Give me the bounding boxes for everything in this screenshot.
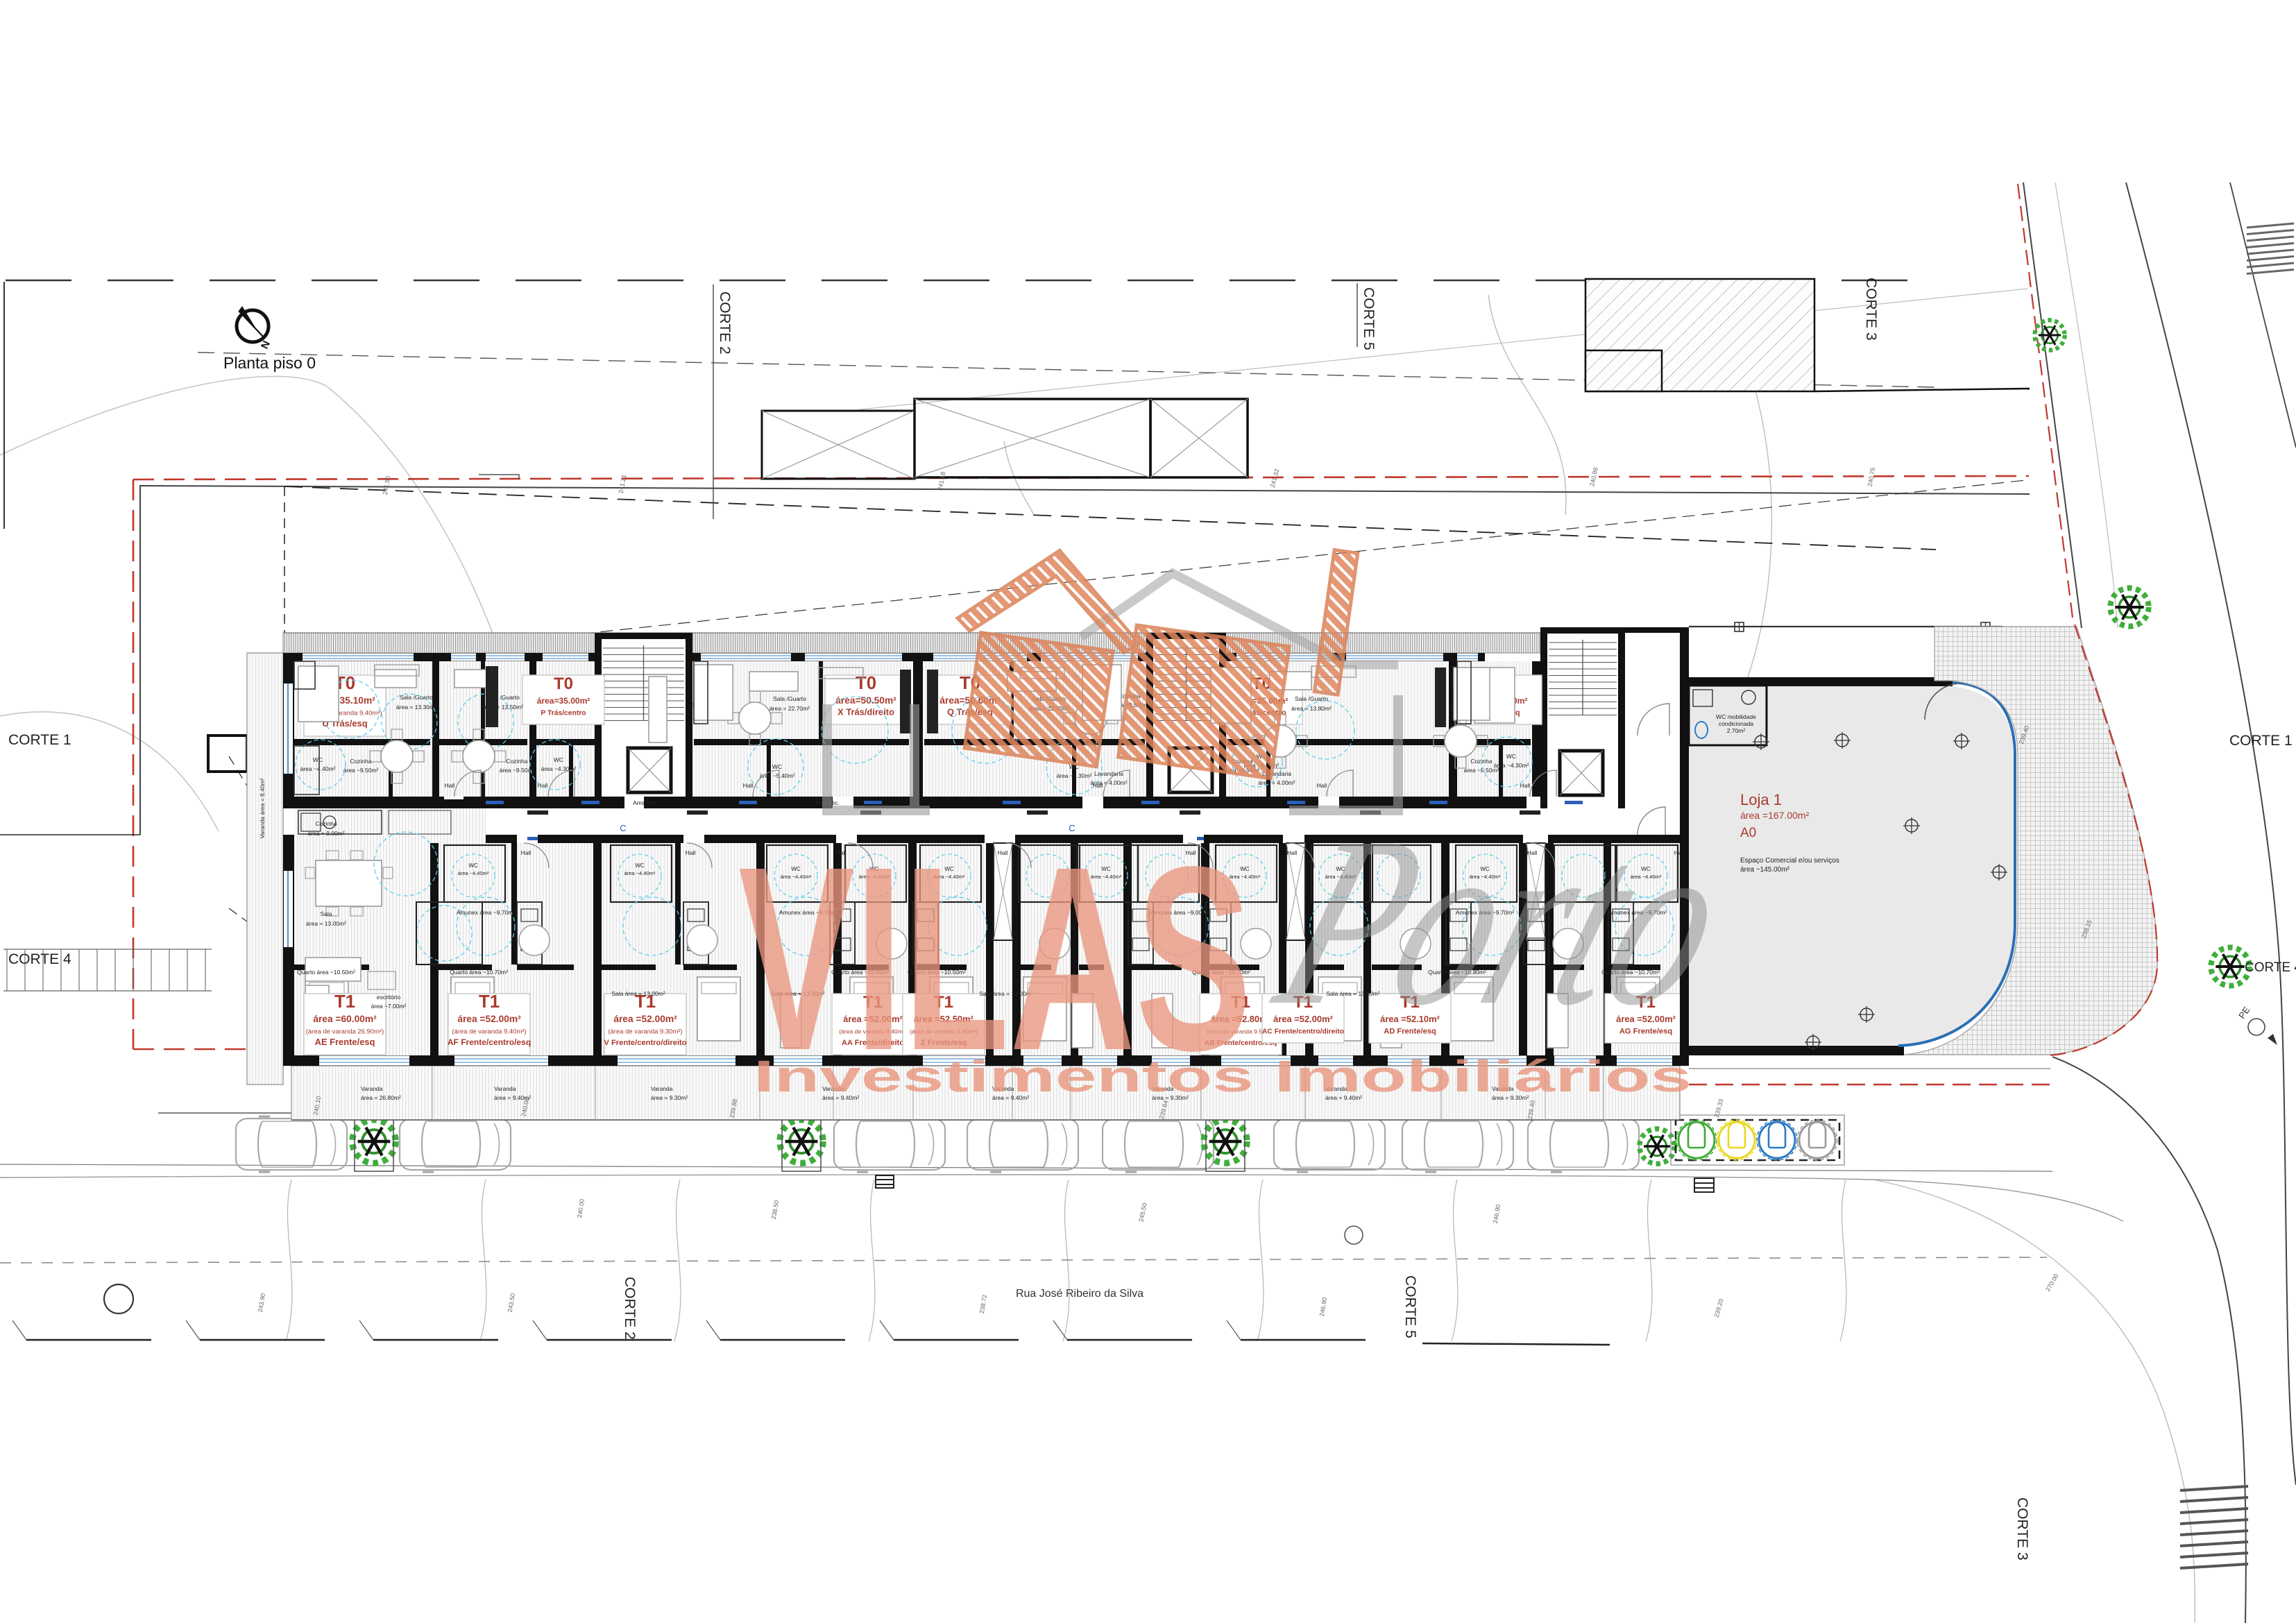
svg-text:Cozinha: Cozinha — [1470, 758, 1492, 765]
svg-text:área ~4.40m²: área ~4.40m² — [458, 870, 489, 876]
svg-text:área = 26.80m²: área = 26.80m² — [361, 1094, 401, 1101]
svg-text:área =52.00m²: área =52.00m² — [457, 1014, 521, 1024]
svg-text:2.70m²: 2.70m² — [1727, 727, 1746, 734]
svg-text:Investimentos Imobiliários: Investimentos Imobiliários — [754, 1051, 1692, 1101]
svg-text:C: C — [620, 823, 626, 833]
svg-text:Hall: Hall — [743, 782, 754, 789]
svg-text:CORTE 4: CORTE 4 — [2245, 960, 2296, 975]
svg-text:Sala: Sala — [320, 910, 332, 917]
svg-text:Cozinha: Cozinha — [315, 820, 337, 827]
svg-text:WC: WC — [1506, 753, 1516, 760]
svg-text:CORTE 5: CORTE 5 — [1402, 1275, 1418, 1339]
svg-text:área = 13.00m²: área = 13.00m² — [306, 920, 346, 927]
svg-text:WC: WC — [635, 863, 645, 869]
svg-text:WC: WC — [468, 863, 478, 869]
svg-text:T0: T0 — [554, 674, 573, 693]
svg-text:WC: WC — [554, 756, 563, 763]
svg-text:área ~5.40m²: área ~5.40m² — [760, 772, 795, 779]
svg-text:área ~4.30m²: área ~4.30m² — [1494, 762, 1529, 769]
svg-text:área =52.00m²: área =52.00m² — [613, 1014, 677, 1024]
svg-text:Espaço Comercial e/ou serviços: Espaço Comercial e/ou serviços — [1740, 857, 1839, 865]
svg-text:Varanda: Varanda — [361, 1085, 384, 1092]
svg-text:área = 4.00m²: área = 4.00m² — [1258, 779, 1295, 786]
svg-text:V Frente/centro/direito: V Frente/centro/direito — [604, 1039, 686, 1047]
svg-text:área ~4.40m²: área ~4.40m² — [624, 870, 656, 876]
svg-text:área =60.00m²: área =60.00m² — [313, 1014, 377, 1024]
svg-text:área=50.50m²: área=50.50m² — [835, 695, 896, 706]
svg-text:CORTE 4: CORTE 4 — [8, 951, 71, 967]
svg-text:Varanda: Varanda — [494, 1085, 516, 1092]
svg-text:área = 9.00m²: área = 9.00m² — [307, 830, 344, 837]
svg-text:Hall: Hall — [445, 782, 455, 789]
svg-text:área = 22.70m²: área = 22.70m² — [769, 705, 810, 712]
svg-text:Amunex área ~9.70m²: Amunex área ~9.70m² — [457, 909, 516, 916]
svg-text:área ~4.30m²: área ~4.30m² — [541, 765, 577, 772]
svg-text:área ~145.00m²: área ~145.00m² — [1740, 866, 1790, 874]
svg-text:Cozinha: Cozinha — [350, 758, 371, 765]
svg-text:condicionada: condicionada — [1719, 720, 1753, 727]
svg-text:Cozinha: Cozinha — [506, 758, 527, 765]
svg-text:área ~5.30m²: área ~5.30m² — [1057, 772, 1092, 779]
svg-text:Hall: Hall — [538, 782, 548, 789]
svg-text:Planta piso 0: Planta piso 0 — [223, 354, 316, 372]
svg-text:CORTE 1: CORTE 1 — [8, 732, 71, 748]
svg-text:WC mobilidade: WC mobilidade — [1716, 713, 1756, 720]
svg-text:área = 9.30m²: área = 9.30m² — [651, 1094, 688, 1101]
svg-text:escritório: escritório — [377, 994, 401, 1001]
svg-text:Varanda área = 8.40m²: Varanda área = 8.40m² — [259, 778, 266, 838]
svg-text:Hall: Hall — [1287, 849, 1298, 856]
svg-text:área ~7.00m²: área ~7.00m² — [371, 1003, 407, 1010]
svg-text:Quarto área ~10.50m²: Quarto área ~10.50m² — [297, 969, 355, 976]
svg-text:CORTE 1: CORTE 1 — [2229, 733, 2293, 749]
svg-text:T0: T0 — [856, 674, 876, 693]
svg-text:Quarto área ~10.70m²: Quarto área ~10.70m² — [450, 969, 508, 976]
svg-text:área ~4.40m²: área ~4.40m² — [300, 765, 336, 772]
svg-text:área = 13.80m²: área = 13.80m² — [1291, 705, 1332, 712]
svg-text:Lavandaria: Lavandaria — [1094, 770, 1123, 777]
svg-text:CORTE 3: CORTE 3 — [2014, 1497, 2030, 1561]
svg-text:AE Frente/esq: AE Frente/esq — [315, 1037, 375, 1047]
svg-text:X Trás/direito: X Trás/direito — [837, 707, 894, 717]
svg-text:Sala /Guarto: Sala /Guarto — [773, 695, 806, 702]
svg-text:Sala área = 13.00m²: Sala área = 13.00m² — [611, 990, 665, 997]
svg-text:área ~9.50m²: área ~9.50m² — [343, 767, 379, 774]
svg-text:(área de varanda 9.40m²): (área de varanda 9.40m²) — [452, 1028, 526, 1036]
svg-text:área =167.00m²: área =167.00m² — [1740, 810, 1810, 821]
svg-text:T1: T1 — [334, 992, 355, 1012]
svg-text:Hall: Hall — [1317, 782, 1327, 789]
svg-text:área=35.00m²: área=35.00m² — [537, 696, 590, 706]
svg-text:T1: T1 — [479, 992, 500, 1012]
svg-text:Sala /Guarto: Sala /Guarto — [400, 694, 433, 701]
svg-text:CORTE 2: CORTE 2 — [622, 1277, 638, 1340]
svg-text:(área de varanda 9.30m²): (área de varanda 9.30m²) — [608, 1028, 682, 1036]
svg-text:CORTE 3: CORTE 3 — [1863, 278, 1879, 341]
svg-text:área = 13.30m²: área = 13.30m² — [396, 704, 436, 711]
svg-text:CORTE 5: CORTE 5 — [1361, 287, 1377, 350]
svg-text:área ~9.50m²: área ~9.50m² — [500, 767, 535, 774]
svg-text:WC: WC — [772, 763, 782, 770]
svg-text:Ams Téc.: Ams Téc. — [633, 799, 658, 806]
svg-text:AF Frente/centro/esq: AF Frente/centro/esq — [448, 1037, 531, 1047]
svg-text:P Trás/centro: P Trás/centro — [541, 710, 586, 717]
svg-text:(área de varanda 26.90m²): (área de varanda 26.90m²) — [306, 1028, 384, 1036]
svg-text:CORTE 2: CORTE 2 — [717, 291, 733, 355]
svg-text:Hall: Hall — [686, 849, 696, 856]
svg-text:Varanda: Varanda — [651, 1085, 673, 1092]
svg-text:WC: WC — [313, 756, 323, 763]
svg-text:Rua José Ribeiro da Silva: Rua José Ribeiro da Silva — [1016, 1288, 1143, 1300]
svg-text:Hall: Hall — [521, 849, 532, 856]
